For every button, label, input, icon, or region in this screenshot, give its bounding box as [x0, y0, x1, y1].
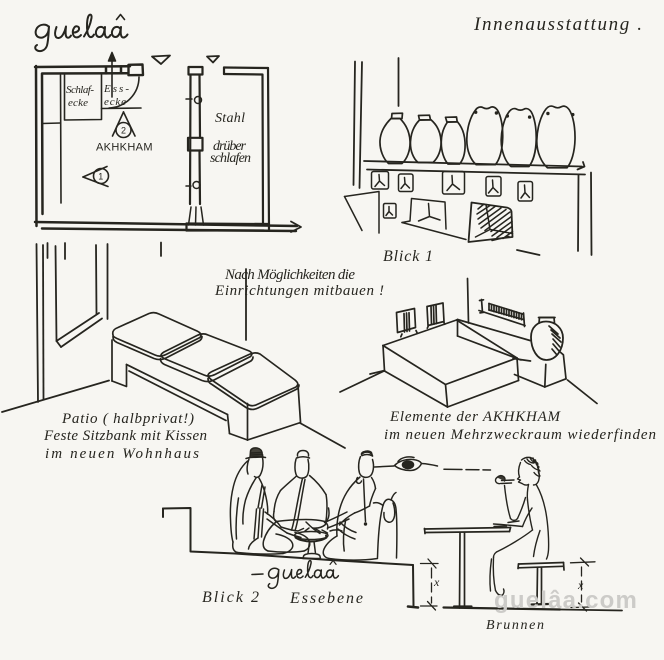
svg-text:im neuen Mehrzweckraum wiederf: im neuen Mehrzweckraum wiederfinden	[384, 427, 656, 443]
svg-text:Nach Möglichkeiten die: Nach Möglichkeiten die	[224, 267, 355, 283]
svg-text:Patio ( halbprivat!): Patio ( halbprivat!)	[61, 411, 194, 427]
svg-text:Ess-: Ess-	[103, 83, 129, 95]
svg-text:Feste Sitzbank mit Kissen: Feste Sitzbank mit Kissen	[43, 428, 207, 444]
svg-text:Elemente der AKHKHAM: Elemente der AKHKHAM	[389, 409, 562, 425]
svg-text:AKHKHAM: AKHKHAM	[96, 142, 155, 154]
svg-text:schlafen: schlafen	[210, 151, 251, 166]
svg-text:Blick 1: Blick 1	[383, 248, 433, 265]
svg-text:Innenausstattung .: Innenausstattung .	[473, 14, 642, 35]
svg-text:Stahl: Stahl	[215, 111, 245, 126]
svg-text:Blick 2: Blick 2	[202, 589, 259, 606]
svg-text:2: 2	[121, 126, 126, 136]
svg-text:Einrichtungen mitbauen !: Einrichtungen mitbauen !	[214, 283, 384, 299]
svg-text:Schlaf-: Schlaf-	[66, 84, 94, 96]
svg-text:x: x	[433, 575, 440, 589]
svg-text:guelâa.com: guelâa.com	[494, 587, 638, 614]
svg-text:1: 1	[98, 172, 103, 182]
svg-text:ecke: ecke	[68, 97, 88, 109]
svg-text:ecke: ecke	[104, 96, 126, 108]
